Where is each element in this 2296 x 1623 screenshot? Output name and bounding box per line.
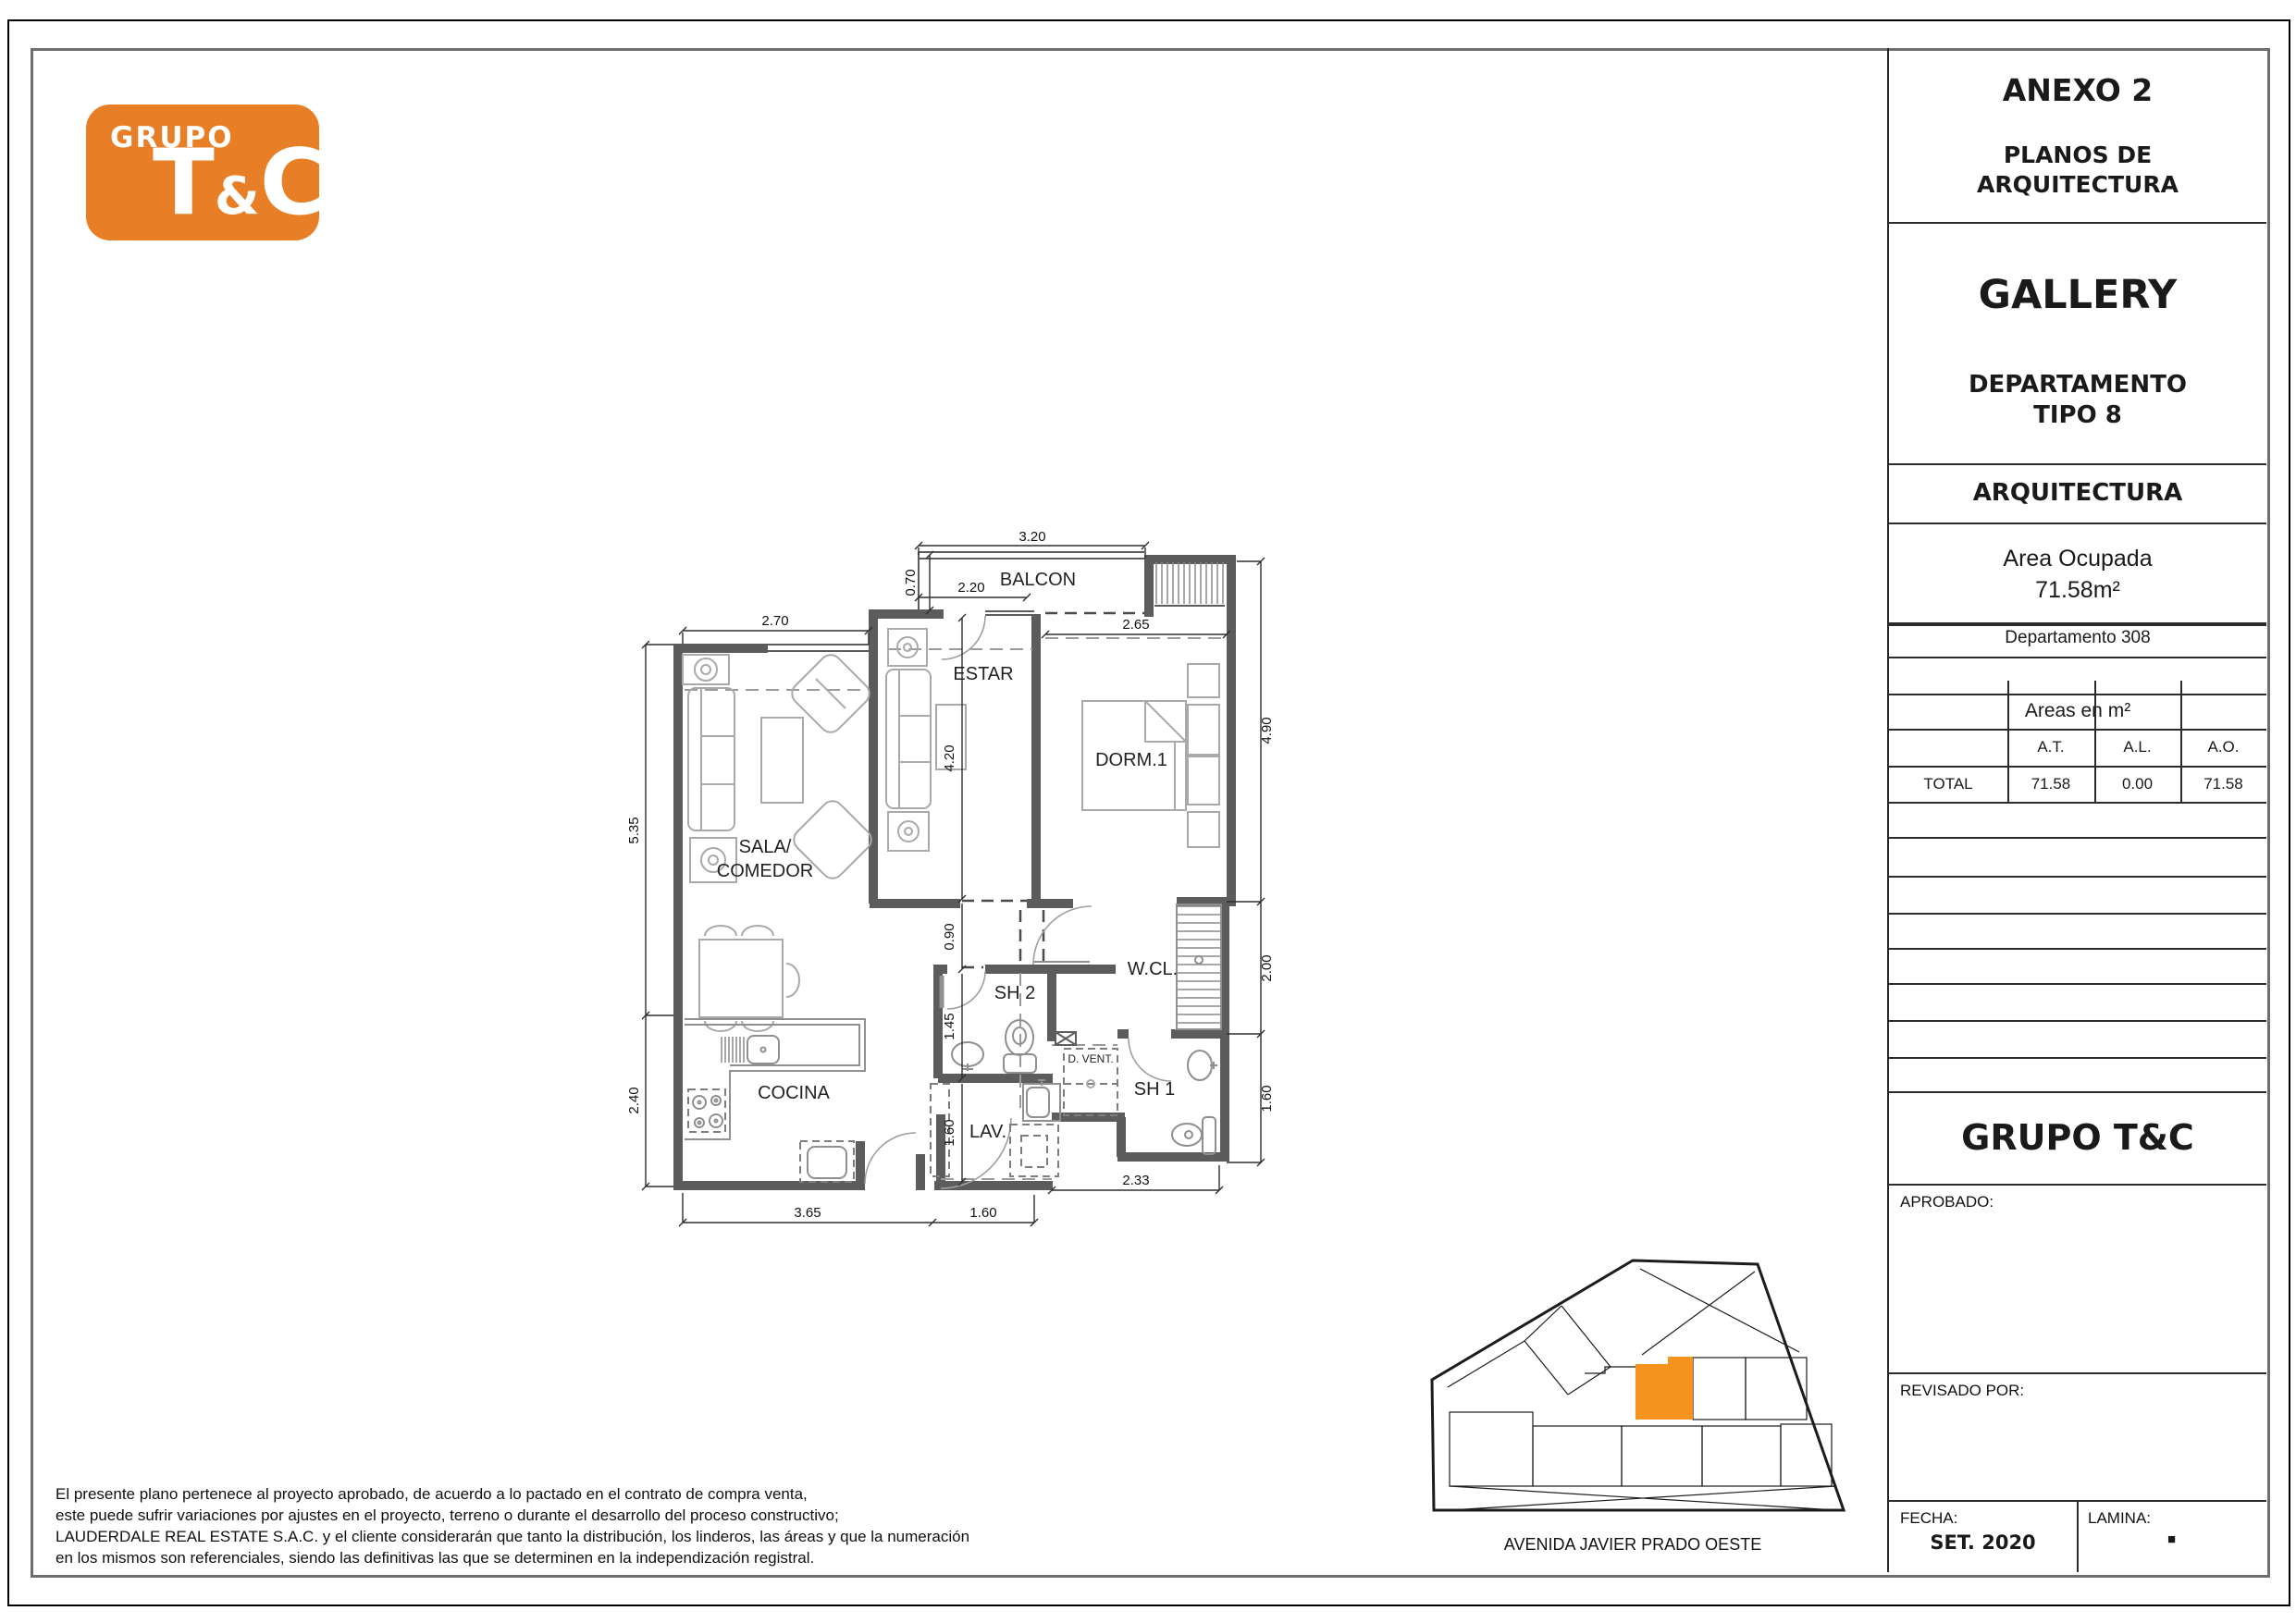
tb-divider: [1889, 694, 2266, 695]
tb-divider: [1889, 463, 2266, 465]
planos-line2: ARQUITECTURA: [1889, 170, 2266, 200]
areas-total-at: 71.58: [2007, 775, 2094, 793]
tb-divider: [1889, 1057, 2266, 1059]
revisado-label: REVISADO POR:: [1900, 1382, 2024, 1400]
dim-sh1: 1.60: [1259, 1085, 1275, 1112]
room-labels: BALCON ESTAR DORM.1 SALA/ COMEDOR COCINA…: [717, 570, 1178, 1142]
room-label-lav: LAV.: [969, 1122, 1006, 1142]
dim-dorm-width: 2.65: [1122, 617, 1149, 633]
vent-duct: [1055, 1032, 1117, 1115]
tipo-line2: TIPO 8: [1889, 400, 2266, 431]
logo-t: T: [153, 130, 215, 236]
unit-type: DEPARTAMENTO TIPO 8: [1889, 370, 2266, 431]
room-label-sala: SALA/: [739, 837, 792, 857]
departamento-number: Departamento 308: [1889, 628, 2266, 648]
floor-plan-drawing: 3.20 2.20 2.65 2.70 2.33 3.65 1.60 0.70 …: [611, 518, 1295, 1258]
logo-tc-text: T&C: [153, 138, 310, 228]
dim-lav: 1.60: [942, 1119, 957, 1146]
area-label: Area Ocupada: [1889, 546, 2266, 572]
room-label-sh2: SH 2: [994, 983, 1035, 1003]
tb-divider: [1889, 983, 2266, 985]
dim-balcony-door: 2.20: [957, 580, 984, 596]
dim-hall: 0.90: [942, 923, 957, 950]
tb-divider: [1889, 622, 2266, 626]
room-label-estar: ESTAR: [953, 664, 1013, 684]
area-value: 71.58m²: [1889, 577, 2266, 604]
tb-divider: [1889, 657, 2266, 658]
anexo-title: ANEXO 2: [1889, 72, 2266, 108]
dim-left-upper: 5.35: [626, 817, 642, 843]
dim-balcony-width: 3.20: [1018, 529, 1045, 545]
areas-header-at: A.T.: [2007, 738, 2094, 756]
dim-wcl: 2.00: [1259, 954, 1275, 981]
dim-bottom-left: 3.65: [794, 1205, 821, 1221]
room-label-comedor: COMEDOR: [717, 861, 813, 881]
areas-header-al: A.L.: [2094, 738, 2180, 756]
lamina-label: LAMINA:: [2088, 1509, 2151, 1528]
highlighted-unit: [1636, 1357, 1693, 1420]
areas-total-ao: 71.58: [2180, 775, 2266, 793]
tb-divider: [1889, 222, 2266, 224]
tb-divider: [1889, 876, 2266, 878]
areas-row-label: TOTAL: [1889, 775, 2007, 793]
disclaimer-line-3: LAUDERDALE REAL ESTATE S.A.C. y el clien…: [56, 1526, 969, 1547]
site-key-plan: [1429, 1248, 1855, 1526]
estar-furniture: [886, 629, 966, 851]
fecha-value: SET. 2020: [1889, 1531, 2077, 1554]
company-logo: GRUPO T&C: [86, 105, 319, 240]
closet-hatch: [1177, 904, 1221, 1029]
logo-c: C: [260, 130, 327, 236]
dim-bottom-center: 1.60: [969, 1205, 996, 1221]
street-label: AVENIDA JAVIER PRADO OESTE: [1415, 1535, 1850, 1555]
discipline: ARQUITECTURA: [1889, 479, 2266, 507]
tb-divider: [1889, 1091, 2266, 1093]
tb-divider: [1889, 802, 2266, 804]
tb-divider: [1889, 1020, 2266, 1022]
logo-ampersand: &: [215, 166, 260, 227]
plan-sheet: GRUPO T&C: [0, 0, 2296, 1623]
disclaimer-text: El presente plano pertenece al proyecto …: [56, 1483, 969, 1568]
tipo-line1: DEPARTAMENTO: [1889, 370, 2266, 400]
disclaimer-line-1: El presente plano pertenece al proyecto …: [56, 1483, 969, 1505]
lamina-value: ■: [2077, 1531, 2266, 1547]
room-label-dorm: DORM.1: [1095, 750, 1167, 770]
dim-right-upper: 4.90: [1259, 717, 1275, 744]
tb-divider: [1889, 766, 2266, 768]
company-name: GRUPO T&C: [1889, 1117, 2266, 1158]
room-label-dvent: D. VENT.: [1068, 1052, 1113, 1065]
balcony-railing-hatch: [1156, 562, 1223, 604]
tb-divider: [1889, 1372, 2266, 1374]
areas-table-title: Areas en m²: [1889, 700, 2266, 722]
room-label-wcl: W.CL.: [1128, 959, 1178, 979]
disclaimer-line-4: en los mismos son referenciales, siendo …: [56, 1547, 969, 1568]
room-label-cocina: COCINA: [758, 1083, 830, 1103]
tb-divider: [1889, 837, 2266, 839]
areas-total-al: 0.00: [2094, 775, 2180, 793]
dim-estar: 4.20: [942, 744, 957, 771]
planos-line1: PLANOS DE: [1889, 141, 2266, 170]
tb-divider: [1889, 913, 2266, 915]
dim-sh2: 1.45: [942, 1013, 957, 1039]
dim-sala-width: 2.70: [761, 613, 788, 629]
areas-header-ao: A.O.: [2180, 738, 2266, 756]
fecha-label: FECHA:: [1900, 1509, 1957, 1528]
room-label-balcon: BALCON: [1000, 570, 1076, 590]
tb-divider: [1889, 1184, 2266, 1186]
room-label-sh1: SH 1: [1134, 1079, 1175, 1100]
title-block: ANEXO 2 PLANOS DE ARQUITECTURA GALLERY D…: [1887, 48, 2266, 1572]
dim-balcony-depth: 0.70: [903, 569, 919, 596]
aprobado-label: APROBADO:: [1900, 1193, 1994, 1211]
project-name: GALLERY: [1889, 272, 2266, 318]
disclaimer-line-2: este puede sufrir variaciones por ajuste…: [56, 1505, 969, 1526]
tb-divider: [1889, 729, 2266, 731]
planos-title: PLANOS DE ARQUITECTURA: [1889, 141, 2266, 200]
tb-divider: [1889, 523, 2266, 524]
dim-bottom-mid: 2.33: [1122, 1173, 1149, 1188]
dim-left-lower: 2.40: [626, 1087, 642, 1113]
tb-divider: [1889, 948, 2266, 950]
